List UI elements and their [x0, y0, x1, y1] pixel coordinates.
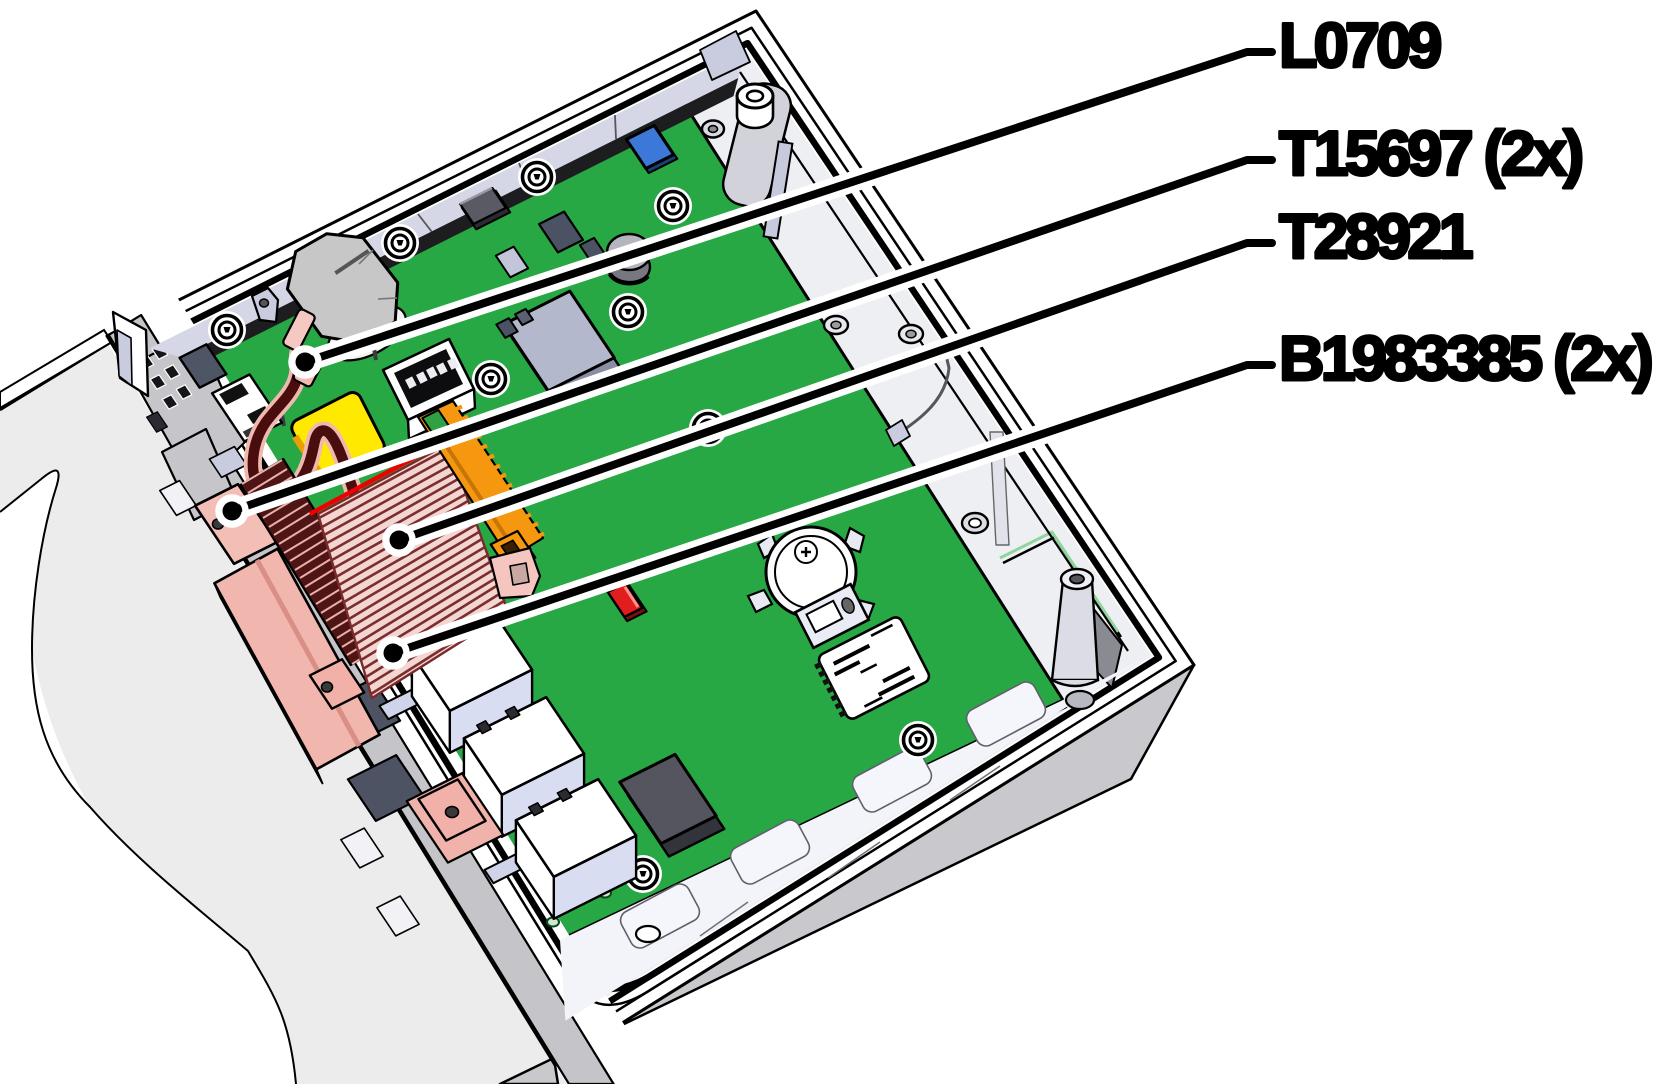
- svg-text:L0709: L0709: [1279, 11, 1440, 81]
- svg-text:T15697 (2x): T15697 (2x): [1279, 119, 1581, 189]
- svg-text:T28921: T28921: [1279, 202, 1473, 272]
- svg-text:B1983385 (2x): B1983385 (2x): [1279, 324, 1651, 394]
